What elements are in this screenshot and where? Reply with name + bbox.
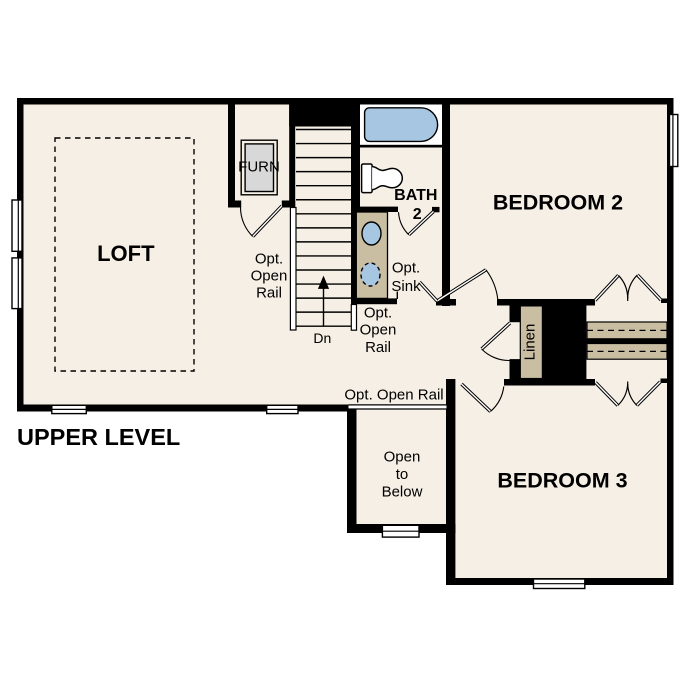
- svg-text:Dn: Dn: [313, 330, 331, 346]
- svg-text:BATH: BATH: [394, 187, 437, 204]
- svg-text:Below: Below: [382, 484, 423, 501]
- svg-text:FURN: FURN: [238, 159, 280, 176]
- svg-text:Sink: Sink: [391, 278, 421, 295]
- svg-text:LOFT: LOFT: [97, 241, 155, 266]
- svg-text:Opt.: Opt.: [255, 251, 283, 268]
- svg-text:Opt.: Opt.: [364, 305, 392, 322]
- svg-text:Open: Open: [384, 449, 421, 466]
- svg-text:BEDROOM 2: BEDROOM 2: [493, 190, 623, 214]
- svg-text:UPPER LEVEL: UPPER LEVEL: [17, 424, 180, 450]
- svg-text:Rail: Rail: [256, 285, 282, 302]
- svg-text:2: 2: [413, 206, 422, 223]
- svg-text:Rail: Rail: [365, 339, 391, 356]
- svg-text:BEDROOM 3: BEDROOM 3: [497, 469, 627, 493]
- svg-text:Opt. Open Rail: Opt. Open Rail: [344, 386, 443, 403]
- svg-text:Open: Open: [360, 322, 397, 339]
- svg-text:Linen: Linen: [522, 324, 539, 361]
- svg-text:Opt.: Opt.: [392, 260, 420, 277]
- svg-text:to: to: [396, 466, 409, 483]
- svg-text:Open: Open: [251, 268, 288, 285]
